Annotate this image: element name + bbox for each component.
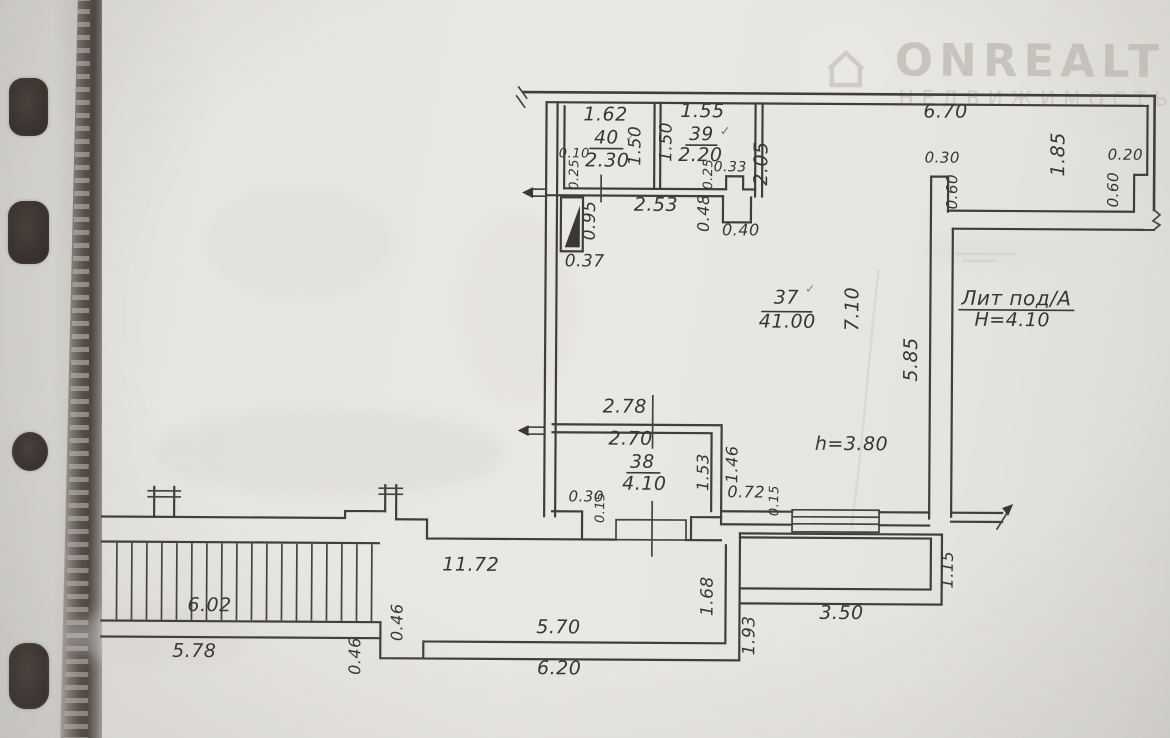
dim-room38-height-inner: 1.53 bbox=[693, 453, 712, 491]
building-label: Лит под/А bbox=[960, 286, 1071, 311]
dim-stairs-length: 6.02 bbox=[187, 594, 231, 616]
dim-room39-width: 1.55 bbox=[680, 100, 724, 122]
dim-right-wall-outer: 1.93 bbox=[739, 615, 759, 655]
dim-pillar-height: 0.60 bbox=[943, 174, 961, 210]
dim-room37-ceiling: h=3.80 bbox=[815, 433, 888, 455]
dim-step-a: 0.46 bbox=[387, 603, 406, 641]
watermark-brand: ONREALT bbox=[895, 33, 1165, 88]
room40-number: 40 bbox=[594, 127, 619, 148]
room39-number: 39 bbox=[689, 124, 714, 145]
floor-plan-walls bbox=[101, 84, 1160, 662]
house-pin-icon bbox=[797, 23, 889, 112]
dim-duct-width: 0.37 bbox=[565, 251, 605, 271]
dim-walkway-length: 11.72 bbox=[442, 554, 499, 576]
dim-room39-wall: 0.25 bbox=[701, 159, 716, 190]
dim-porch-right-height: 1.15 bbox=[938, 551, 957, 589]
dim-step-b: 0.46 bbox=[345, 637, 364, 675]
check-mark: ✓ bbox=[720, 124, 731, 139]
scanned-floor-plan-photo: ONREALT НЕДВИЖИМОСТЬ bbox=[0, 0, 1170, 738]
room37-number: 37 bbox=[774, 287, 799, 309]
dimension-labels: 1.62 1.55 40 2.30 39 2.20 0.10 0.33 2.53… bbox=[172, 96, 1143, 683]
dim-duct-height: 0.95 bbox=[580, 200, 600, 240]
dim-shaft-width: 0.40 bbox=[722, 220, 760, 239]
dim-pillar-width: 0.30 bbox=[925, 148, 961, 166]
check-mark: ✓ bbox=[805, 282, 816, 296]
dim-stairs-outer: 5.78 bbox=[172, 640, 216, 662]
room38-number: 38 bbox=[630, 452, 655, 473]
check-mark: ✓ bbox=[625, 131, 636, 145]
dim-notch-width: 0.20 bbox=[1108, 146, 1144, 164]
dim-hall-width: 2.53 bbox=[634, 194, 678, 216]
dim-nook-width: 0.72 bbox=[727, 482, 765, 501]
dim-room39-depth: 1.50 bbox=[656, 122, 676, 162]
dim-porch-left-inner: 5.70 bbox=[536, 616, 580, 638]
floor-plan-drawing: ONREALT НЕДВИЖИМОСТЬ bbox=[0, 0, 1170, 738]
watermark: ONREALT НЕДВИЖИМОСТЬ bbox=[797, 23, 1170, 113]
building-height: Н=4.10 bbox=[974, 309, 1050, 331]
dim-room37-right-wall: 5.85 bbox=[900, 337, 922, 381]
dim-porch-right-width: 3.50 bbox=[819, 602, 863, 624]
room40-area: 2.30 bbox=[585, 149, 629, 171]
room37-area: 41.00 bbox=[759, 310, 816, 332]
dim-shaft-height: 0.48 bbox=[694, 194, 713, 232]
dim-porch-left-outer: 6.20 bbox=[537, 657, 581, 679]
dim-room38-height-outer: 1.46 bbox=[722, 445, 741, 483]
dim-room37-length: 7.10 bbox=[841, 287, 863, 331]
dim-room38-width-outer: 2.78 bbox=[603, 396, 647, 418]
dim-nook-wall: 0.15 bbox=[767, 485, 782, 516]
dim-room39-notch: 0.33 bbox=[714, 159, 747, 175]
dim-notch-height: 0.60 bbox=[1104, 172, 1122, 208]
dim-room38-wall: 0.15 bbox=[593, 492, 608, 523]
dim-wing-width: 1.85 bbox=[1047, 132, 1069, 176]
dim-room40-width: 1.62 bbox=[583, 103, 627, 125]
dim-wing-left-height: 2.05 bbox=[750, 141, 772, 185]
room38-area: 4.10 bbox=[622, 473, 666, 495]
dim-wing-length: 6.70 bbox=[923, 100, 967, 122]
dim-room40-wall: 0.25 bbox=[567, 159, 582, 190]
dim-room38-width-inner: 2.70 bbox=[608, 428, 652, 450]
dim-right-wall-inner: 1.68 bbox=[697, 576, 717, 616]
